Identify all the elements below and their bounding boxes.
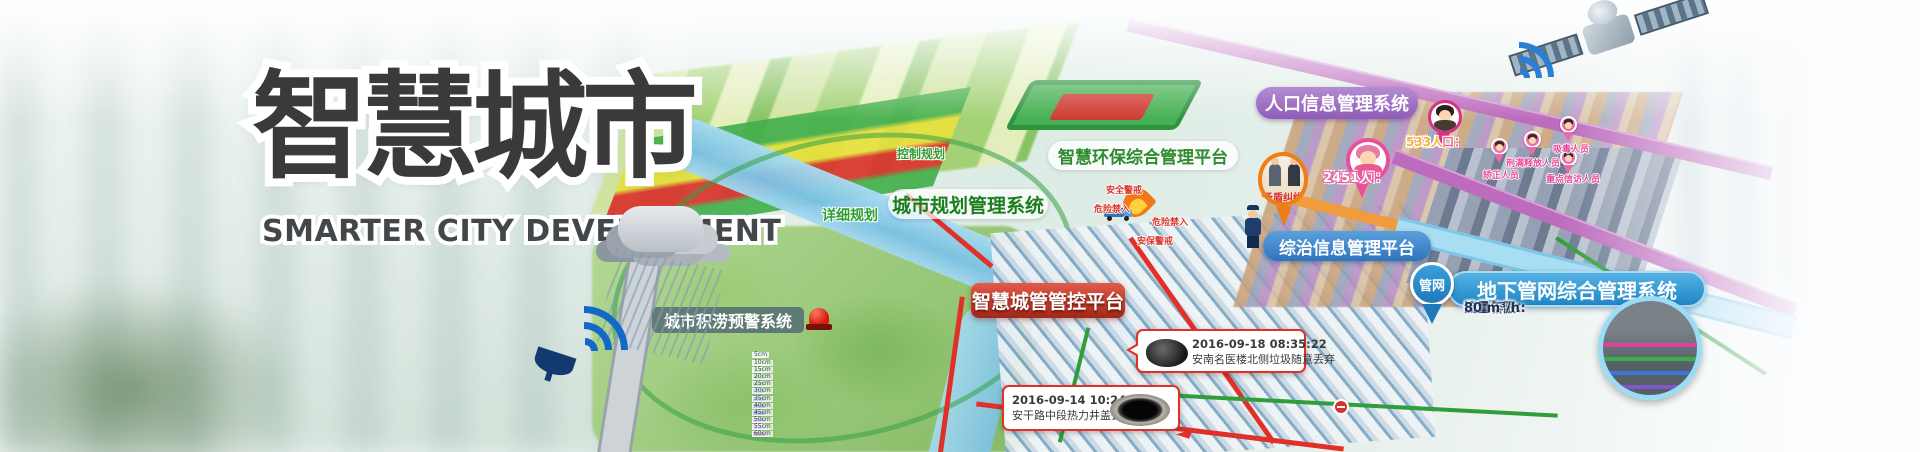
legend-label: 30cm: [752, 388, 773, 394]
label-city-planning-system: 城市规划管理系统: [888, 189, 1048, 219]
event-callout-manhole: 2016-09-14 10:24:15 安干路中段热力井盖丢失: [1002, 385, 1180, 431]
policeman-figure: [1243, 205, 1263, 249]
page-title: 智慧城市: [252, 58, 692, 197]
dispute-label: 矛盾纠纷: [1262, 189, 1304, 204]
flood-legend-row: 35cm: [752, 395, 812, 402]
rain-cloud-icon: [618, 206, 704, 252]
pipe-magnifier-icon: [1598, 296, 1702, 400]
dispute-pin: 矛盾纠纷: [1258, 152, 1310, 228]
flood-legend-row: 30cm: [752, 388, 812, 395]
legend-label: 45cm: [752, 410, 773, 416]
event-callout-trash: 2016-09-18 08:35:22 安南名医楼北侧垃圾随意丢弃: [1136, 329, 1306, 373]
legend-label: 40cm: [752, 403, 773, 409]
manhole-photo: [1110, 394, 1170, 426]
person-tag: 重点信访人员: [1546, 172, 1600, 185]
flood-legend-row: 10cm: [752, 359, 812, 366]
label-env-platform: 智慧环保综合管理平台: [1048, 141, 1238, 170]
legend-label: 15cm: [752, 367, 773, 373]
label-population-system: 人口信息管理系统: [1256, 87, 1418, 119]
no-entry-sign-icon: [1333, 399, 1349, 415]
label-city-mgmt-platform: 智慧城管管控平台: [971, 283, 1125, 318]
legend-label: 50cm: [752, 417, 773, 423]
event-datetime: 2016-09-18 08:35:22: [1192, 336, 1335, 352]
person-tag: 矫正人员: [1483, 168, 1519, 181]
legend-label: 35cm: [752, 396, 773, 402]
legend-label: 5cm: [752, 352, 769, 358]
legend-label: 55cm: [752, 424, 773, 430]
warning-text: 危险禁入: [1094, 202, 1130, 215]
pipeline-pin-label: 管网: [1410, 262, 1454, 306]
warning-text: 安保警戒: [1137, 234, 1173, 247]
legend-label: 20cm: [752, 374, 773, 380]
legend-label: 60cm: [752, 431, 773, 437]
legend-label: 25cm: [752, 381, 773, 387]
label-detail-planning: 详细规划: [822, 205, 878, 225]
trash-photo: [1146, 339, 1188, 367]
person-tag: 吸毒人员: [1553, 142, 1589, 155]
flood-legend-row: 5cm: [752, 352, 812, 359]
pipeline-pin: 管网: [1410, 262, 1456, 328]
flood-legend: 5cm10cm15cm20cm25cm30cm35cm40cm45cm50cm5…: [752, 352, 812, 438]
person-pin: [1524, 131, 1542, 159]
smart-city-banner: 智慧城市 智慧城市 SMARTER CITY DEVELOPMENT SMART…: [0, 0, 1920, 452]
event-description: 安南名医楼北侧垃圾随意丢弃: [1192, 352, 1335, 368]
label-control-planning: 控制规划: [897, 145, 945, 162]
alarm-lamp-icon: [806, 306, 832, 332]
legend-label: 10cm: [752, 360, 773, 366]
label-integrated-info-platform: 综治信息管理平台: [1263, 231, 1431, 261]
warning-text: 危险禁入: [1152, 215, 1188, 228]
person-pin: [1560, 116, 1578, 144]
flood-legend-row: 60cm: [752, 431, 812, 438]
warning-text: 安全警戒: [1106, 183, 1142, 196]
